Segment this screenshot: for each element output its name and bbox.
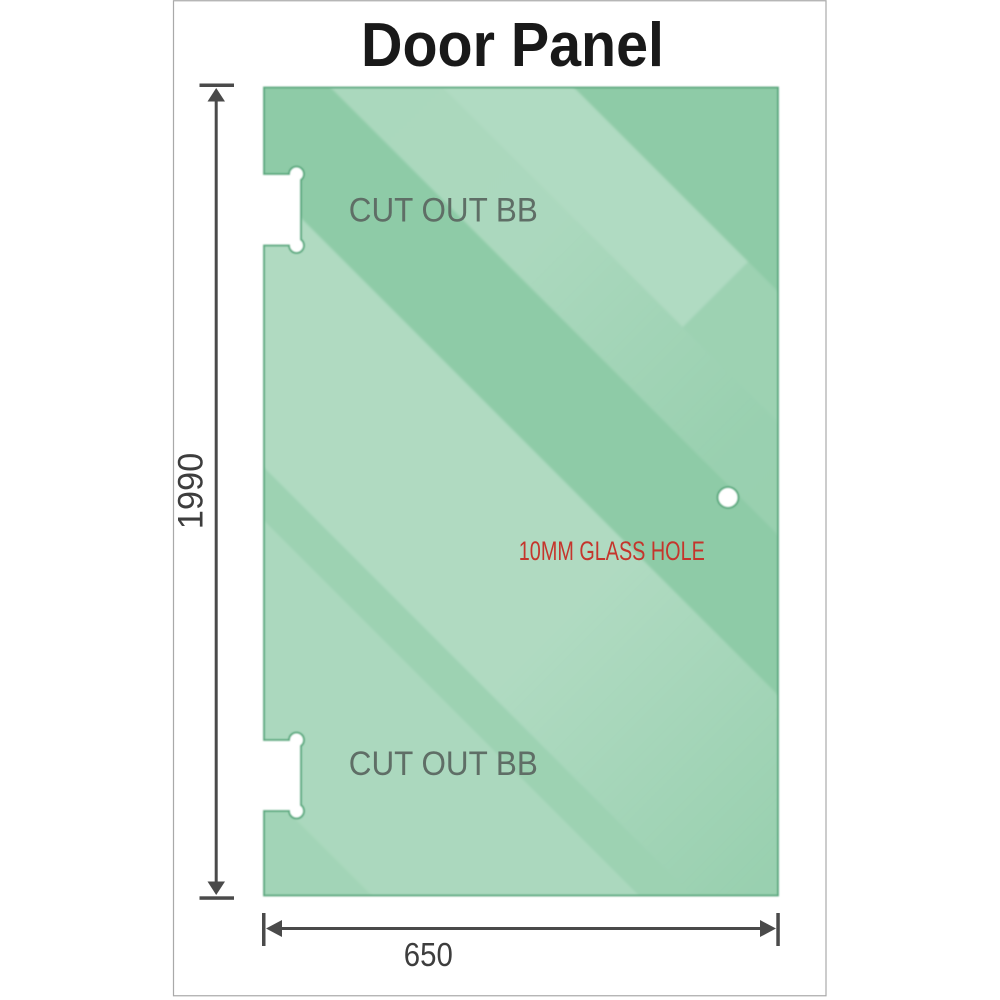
svg-text:1990: 1990 [172, 453, 211, 530]
svg-text:CUT OUT BB: CUT OUT BB [349, 192, 538, 230]
svg-text:650: 650 [404, 937, 453, 974]
svg-text:CUT OUT BB: CUT OUT BB [349, 745, 538, 783]
svg-text:10MM GLASS HOLE: 10MM GLASS HOLE [519, 536, 705, 566]
svg-text:Door Panel: Door Panel [361, 10, 664, 80]
